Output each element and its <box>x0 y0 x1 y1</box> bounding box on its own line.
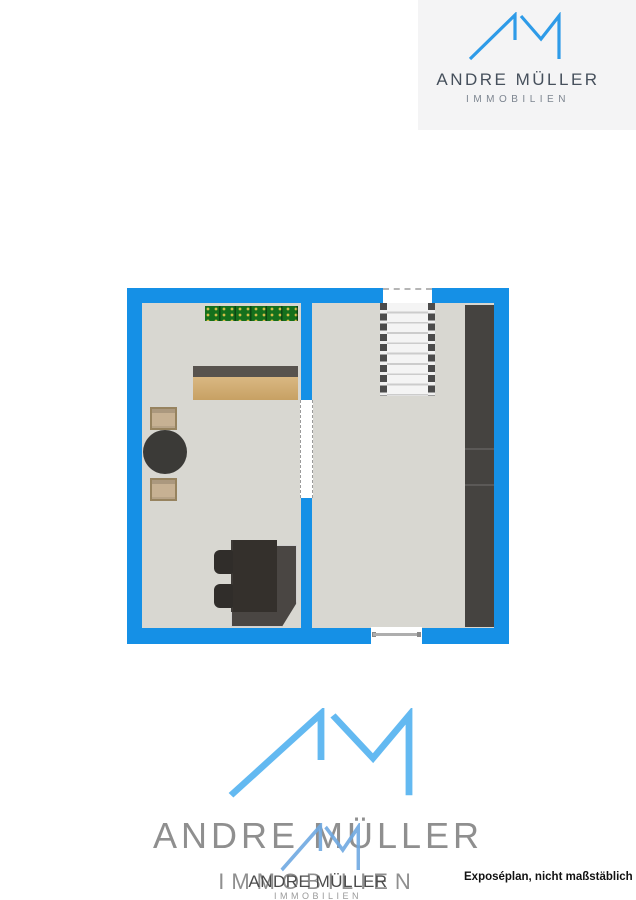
brand-name: ANDRE MÜLLER <box>420 70 616 90</box>
wardrobe-seam <box>465 484 494 486</box>
am-monogram-icon <box>468 12 561 61</box>
window <box>371 627 422 644</box>
armchair <box>150 407 177 430</box>
scale-disclaimer: Exposéplan, nicht maßstäblich <box>464 871 634 883</box>
wardrobe-seam <box>465 448 494 450</box>
stair-stringer-left <box>380 303 387 396</box>
dining-chair <box>214 584 233 608</box>
window-glass-bar <box>373 633 420 636</box>
wardrobe <box>465 305 494 627</box>
expose-page: ANDRE MÜLLER IMMOBILIEN <box>0 0 636 900</box>
floor-plan <box>127 288 509 644</box>
armchair <box>150 478 177 501</box>
round-table <box>143 430 187 474</box>
am-monogram-overlay-icon <box>280 823 360 872</box>
door-opening <box>300 400 313 498</box>
stair-stringer-right <box>428 303 435 396</box>
dining-chair <box>214 550 233 574</box>
sideboard <box>193 366 298 400</box>
staircase <box>380 303 435 396</box>
watermark-overlay-subtitle: IMMOBILIEN <box>0 891 636 900</box>
am-monogram-watermark-icon <box>227 708 413 799</box>
brand-subtitle: IMMOBILIEN <box>420 94 616 105</box>
stair-wall-opening <box>383 288 432 303</box>
dining-table <box>231 540 277 612</box>
stair-treads <box>387 303 428 396</box>
doormat <box>205 306 298 321</box>
window-frame-cap <box>417 632 421 637</box>
agency-logo-header: ANDRE MÜLLER IMMOBILIEN <box>418 0 636 130</box>
